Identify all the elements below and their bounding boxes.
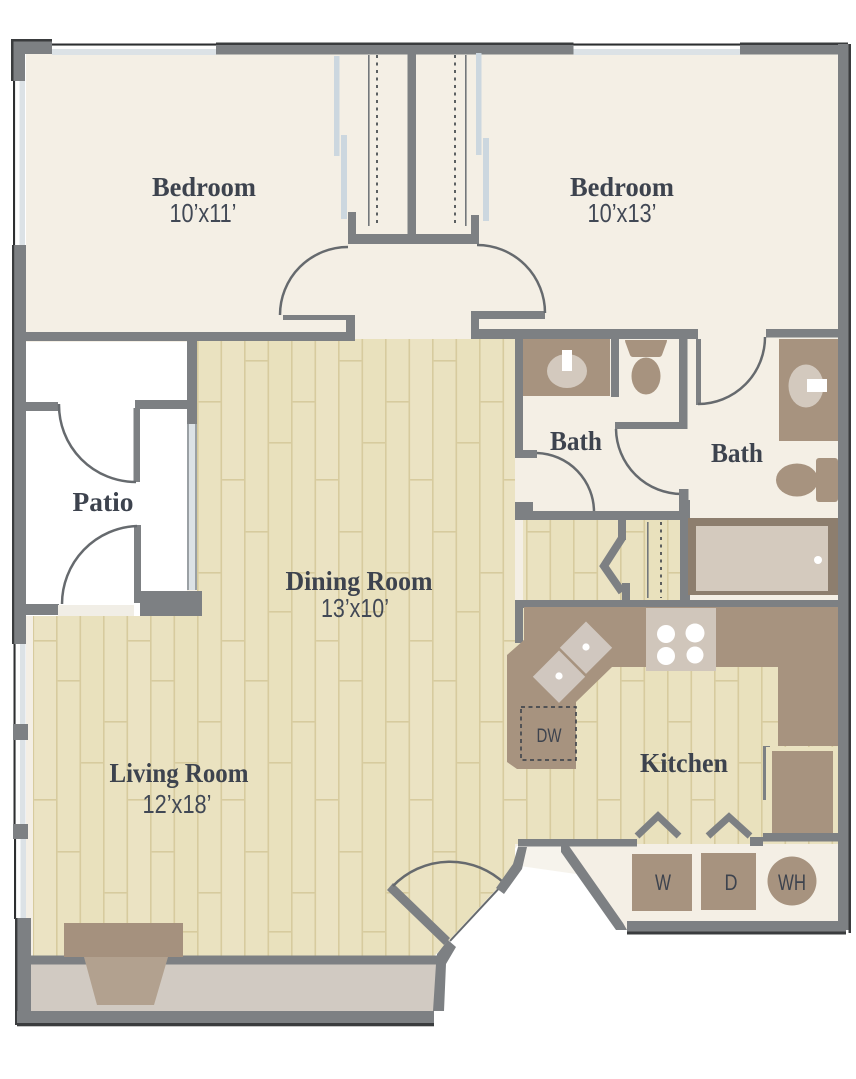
svg-text:10’x11’: 10’x11’ <box>170 200 237 228</box>
svg-text:Living Room: Living Room <box>110 758 249 788</box>
svg-text:Dining Room: Dining Room <box>286 566 433 596</box>
svg-text:Bedroom: Bedroom <box>152 172 256 202</box>
svg-text:12’x18’: 12’x18’ <box>143 791 212 819</box>
svg-text:WH: WH <box>778 870 806 895</box>
svg-text:Kitchen: Kitchen <box>640 748 728 778</box>
svg-text:10’x13’: 10’x13’ <box>588 200 657 228</box>
svg-text:D: D <box>725 870 738 895</box>
svg-text:Patio: Patio <box>73 487 134 517</box>
svg-text:13’x10’: 13’x10’ <box>321 595 389 623</box>
svg-text:Bath: Bath <box>550 426 602 456</box>
svg-text:W: W <box>655 870 671 895</box>
svg-text:Bedroom: Bedroom <box>570 172 674 202</box>
svg-text:Bath: Bath <box>711 438 763 468</box>
svg-text:DW: DW <box>537 726 562 747</box>
